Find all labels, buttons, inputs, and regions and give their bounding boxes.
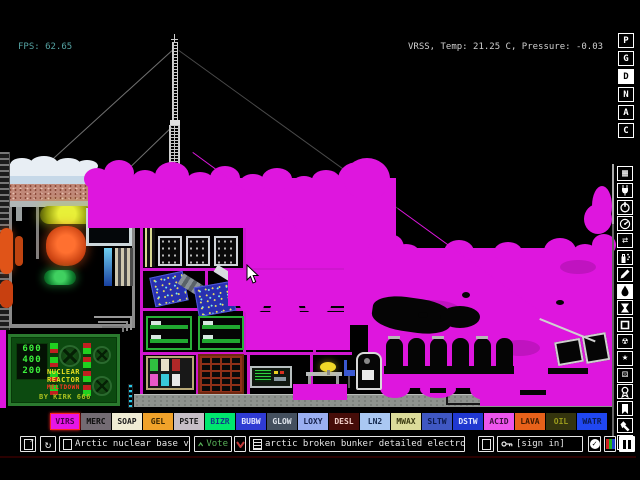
bunk-pillow (203, 335, 213, 339)
menu-letter-g[interactable]: G (618, 51, 634, 66)
reactor-room-partition (36, 207, 39, 259)
antenna-tower-upper (172, 42, 178, 122)
swap-arrows-icon[interactable]: ⇄ (617, 233, 633, 248)
bunk-pillow (151, 335, 161, 339)
hourglass-icon[interactable] (617, 300, 633, 315)
gauge-icon[interactable] (617, 216, 633, 231)
pipe-elbow (102, 326, 124, 332)
bookmark-icon[interactable] (617, 401, 633, 416)
element-pste[interactable]: PSTE (174, 413, 204, 430)
open-browser-button[interactable]: ↗ (20, 436, 36, 452)
spray-icon[interactable] (617, 250, 633, 265)
medal-icon[interactable] (617, 384, 633, 399)
sign-warning: MELTDOWN (47, 385, 80, 391)
debris-base (384, 366, 514, 374)
guy-wire (40, 50, 172, 171)
plug-icon[interactable] (617, 183, 633, 198)
brick-wall (198, 354, 244, 394)
tool-scrollbar-thumb[interactable] (612, 164, 614, 224)
powder-toy-window: 600400200 NUCLEAR REACTOR MELTDOWN BY KI… (0, 0, 640, 480)
sign-in-button[interactable]: [sign in] (497, 436, 583, 452)
bunker-floor (140, 352, 352, 355)
console-button (274, 371, 278, 374)
element-sltw[interactable]: SLTW (422, 413, 452, 430)
check-icon: ✓ (590, 439, 600, 449)
bunk-mattress (150, 339, 188, 343)
save-tag-button[interactable]: arctic broken bunker detailed electronic… (249, 436, 465, 452)
reload-button[interactable]: ↻ (40, 436, 56, 452)
edge-fuel-pill (0, 228, 13, 274)
vote-up-button[interactable]: Vote (194, 436, 232, 452)
washer-knob (364, 358, 370, 364)
element-merc[interactable]: MERC (81, 413, 111, 430)
tag-text: arctic broken bunker detailed electronic… (265, 439, 465, 449)
locker-bottle (150, 359, 158, 371)
chair-back (344, 360, 347, 372)
element-bubw[interactable]: BUBW (236, 413, 266, 430)
element-mwax[interactable]: MWAX (391, 413, 421, 430)
element-loxy[interactable]: LOXY (298, 413, 328, 430)
led-readout: 600400200 (16, 343, 48, 380)
bunk-mattress (150, 325, 188, 329)
antenna-crossbar (171, 39, 178, 40)
debris-arch (408, 338, 425, 366)
reactor-dial (92, 376, 112, 396)
element-lava[interactable]: LAVA (515, 413, 545, 430)
bunk-pillow (203, 321, 213, 325)
tag-icon (253, 439, 262, 450)
reactor-dial (59, 345, 81, 367)
snow-mound (30, 156, 58, 172)
bunk-mattress (202, 339, 240, 343)
bunk-mattress (202, 325, 240, 329)
menu-letter-n[interactable]: N (618, 87, 634, 102)
decoration-button[interactable] (604, 436, 616, 452)
element-gel[interactable]: GEL (143, 413, 173, 430)
simulation-canvas[interactable]: 600400200 NUCLEAR REACTOR MELTDOWN BY KI… (0, 0, 612, 458)
key-icon (501, 438, 513, 450)
locker-bottle (150, 374, 158, 386)
status-readout: VRSS, Temp: 21.25 C, Pressure: -0.03 (408, 42, 603, 52)
element-acid[interactable]: ACID (484, 413, 514, 430)
dice-icon[interactable]: ⚄ (617, 368, 633, 383)
locker-bottle (172, 374, 180, 386)
virus-mass-right-bottom (480, 380, 612, 406)
reactor-sign-panel: 600400200 NUCLEAR REACTOR MELTDOWN BY KI… (8, 334, 120, 406)
pause-icon (623, 440, 631, 449)
debris-arch (386, 338, 403, 366)
debris-arch (474, 338, 491, 366)
edge-fuel-pill (15, 236, 23, 266)
server-cabinet (214, 236, 238, 266)
locker-bottle (161, 374, 169, 386)
debris-pocket (440, 306, 480, 328)
open-arrow-icon: ↗ (30, 436, 34, 444)
reactor-capsule-green (44, 270, 76, 285)
fps-counter: FPS: 62.65 (18, 42, 72, 52)
virus-edge-strip (0, 330, 6, 408)
sign-title-line2: REACTOR (47, 377, 80, 384)
bunk-pillow (151, 321, 161, 325)
washer-door (362, 370, 374, 380)
server-cabinet (186, 236, 210, 266)
server-cabinet (158, 236, 182, 266)
coolant-pipe (104, 248, 112, 286)
console-screen (255, 370, 271, 382)
element-dstw[interactable]: DSTW (453, 413, 483, 430)
virus-floating-blob (446, 252, 476, 286)
virus-floor-patch (293, 384, 347, 400)
element-watr[interactable]: WATR (577, 413, 607, 430)
element-virs[interactable]: VIRS (50, 413, 80, 430)
ice-layer (8, 176, 96, 184)
locker-bottle (172, 359, 180, 371)
new-save-button[interactable] (478, 436, 494, 452)
console-button (280, 371, 284, 374)
bottom-separator (0, 456, 636, 458)
sign-credit: BY KIRK 666 (39, 394, 91, 401)
square-icon[interactable] (617, 317, 633, 332)
vote-label: Vote (206, 439, 228, 449)
vote-down-icon (236, 441, 245, 448)
element-desl[interactable]: DESL (329, 413, 359, 430)
menu-letter-p[interactable]: P (618, 33, 634, 48)
tool-scrollbar[interactable] (612, 164, 614, 438)
element-glow[interactable]: GLOW (267, 413, 297, 430)
rgb-palette-icon (606, 439, 615, 449)
save-title: Arctic nuclear base v.1 (75, 439, 190, 449)
pause-button[interactable] (619, 436, 635, 452)
radiation-icon[interactable]: ☢ (617, 334, 633, 349)
vote-up-icon (198, 441, 203, 448)
keyboard-icon[interactable]: ▦ (617, 166, 633, 181)
drop-icon[interactable] (617, 284, 633, 299)
pencil-icon[interactable] (617, 267, 633, 282)
save-icon (63, 439, 72, 450)
support-column (16, 207, 22, 221)
led-digits: 600 (17, 344, 47, 355)
hammer-icon[interactable] (617, 418, 633, 433)
locker-bottle (161, 359, 169, 371)
chair-leg (348, 376, 350, 388)
menu-letter-c[interactable]: C (618, 123, 634, 138)
debris-arch (496, 338, 513, 366)
save-slot-button[interactable]: Arctic nuclear base v.1 (59, 436, 190, 452)
indicator-bars (83, 343, 91, 399)
wrecked-vehicle-cab (554, 338, 584, 366)
virus-room-patch (246, 226, 350, 268)
power-icon[interactable] (617, 200, 633, 215)
element-bizr[interactable]: BIZR (205, 413, 235, 430)
heater-rack (115, 248, 133, 286)
confirm-button[interactable]: ✓ (588, 436, 601, 452)
bunker-wall-left (140, 205, 143, 395)
sign-title-line1: NUCLEAR (47, 369, 80, 376)
new-document-icon (482, 439, 491, 450)
star-icon[interactable]: ★ (617, 351, 633, 366)
element-soap[interactable]: SOAP (112, 413, 142, 430)
mouse-cursor (246, 264, 260, 285)
vertical-sign-strip (128, 384, 133, 408)
virus-room-patch (246, 312, 350, 350)
reactor-capsule-orange (46, 226, 86, 266)
element-ln2[interactable]: LN2 (360, 413, 390, 430)
lamp-stand (327, 370, 330, 375)
debris-arch (452, 338, 469, 366)
reload-icon: ↻ (45, 438, 52, 451)
wall-pipes (145, 227, 155, 267)
led-digits: 200 (17, 366, 47, 377)
menu-letter-a[interactable]: A (618, 105, 634, 120)
led-digits: 400 (17, 355, 47, 366)
sign-in-label: [sign in] (516, 439, 565, 449)
console-vent (274, 377, 286, 381)
element-oil[interactable]: OIL (546, 413, 576, 430)
menu-letter-d[interactable]: D (618, 69, 634, 84)
debris-arch (430, 338, 447, 366)
edge-fuel-pill (0, 280, 13, 308)
reactor-dial (93, 346, 111, 364)
vote-down-button[interactable] (234, 436, 246, 452)
